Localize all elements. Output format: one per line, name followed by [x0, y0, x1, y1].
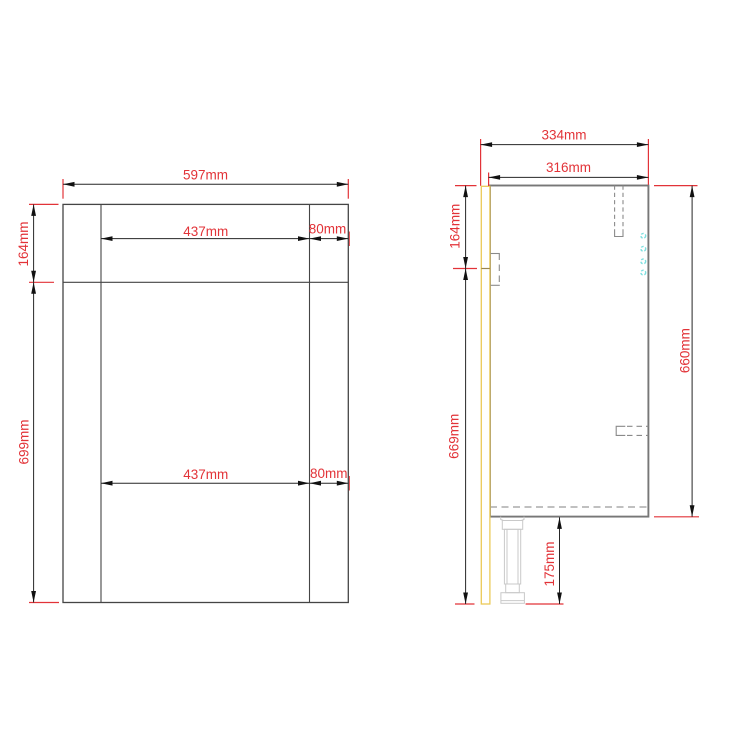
svg-text:80mm: 80mm	[309, 221, 347, 236]
svg-text:316mm: 316mm	[546, 160, 591, 175]
svg-text:699mm: 699mm	[17, 419, 32, 464]
svg-text:80mm: 80mm	[310, 466, 348, 481]
svg-text:334mm: 334mm	[541, 127, 586, 142]
svg-text:660mm: 660mm	[677, 328, 692, 373]
svg-text:437mm: 437mm	[183, 467, 228, 482]
svg-text:175mm: 175mm	[542, 541, 557, 586]
svg-text:669mm: 669mm	[447, 414, 462, 459]
svg-text:164mm: 164mm	[16, 221, 31, 266]
svg-text:164mm: 164mm	[447, 204, 462, 249]
svg-text:597mm: 597mm	[183, 168, 228, 183]
svg-text:437mm: 437mm	[183, 224, 228, 239]
